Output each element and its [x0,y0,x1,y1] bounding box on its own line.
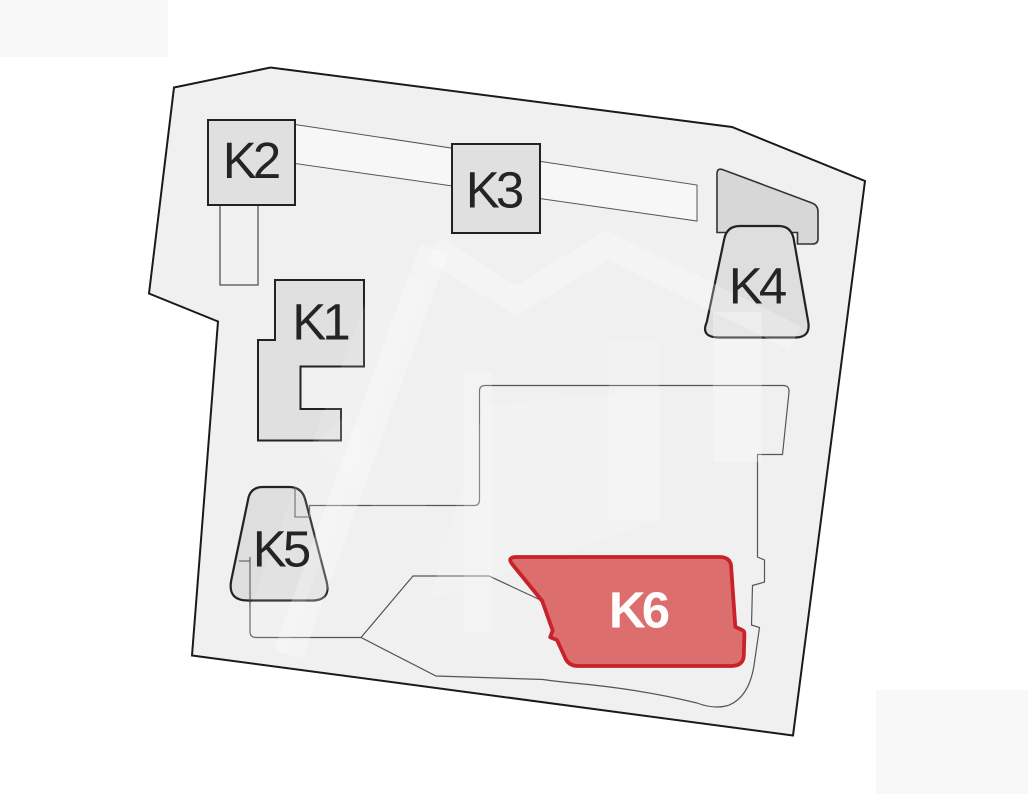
svg-text:K2: K2 [223,132,279,189]
svg-text:K5: K5 [253,521,310,578]
svg-text:K6: K6 [609,582,669,639]
svg-text:K3: K3 [466,162,523,219]
svg-text:K1: K1 [292,294,348,351]
svg-text:K4: K4 [729,258,786,315]
